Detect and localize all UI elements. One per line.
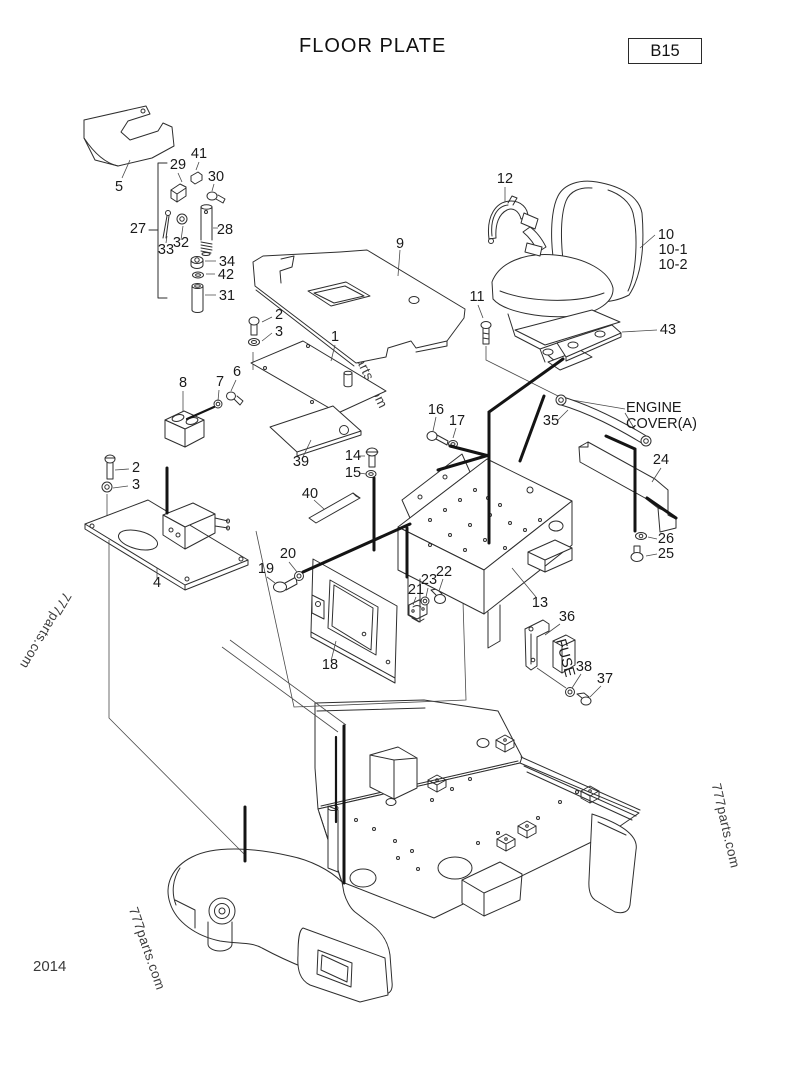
part-label-38-47: 38: [576, 659, 592, 675]
part-label-10-1-14: 10-1: [658, 242, 687, 258]
part-label-18-46: 18: [322, 657, 338, 673]
part-label-16-24: 16: [428, 402, 444, 418]
part-label-15-32: 15: [345, 465, 361, 481]
part-label-21-42: 21: [408, 582, 424, 598]
part-label-30-3: 30: [208, 169, 224, 185]
part-label-36-45: 36: [559, 609, 575, 625]
part-label-35-26: 35: [543, 413, 559, 429]
part-label-27-4: 27: [130, 221, 146, 237]
part-label-8-21: 8: [179, 375, 187, 391]
part-label-2-18: 2: [275, 307, 283, 323]
part-label-29-1: 29: [170, 157, 186, 173]
part-label-1-20: 1: [331, 329, 339, 345]
part-label-6-23: 6: [233, 364, 241, 380]
part-label-9-11: 9: [396, 236, 404, 252]
part-label-3-19: 3: [275, 324, 283, 340]
part-label-41-2: 41: [191, 146, 207, 162]
part-label-19-39: 19: [258, 561, 274, 577]
part-label-17-25: 17: [449, 413, 465, 429]
chassis-frame-drawing: [168, 700, 640, 1002]
exploded-parts-diagram: 5294130273332283442319121010-110-2114323…: [0, 0, 800, 1067]
part-label-engine-27: ENGINE: [626, 400, 682, 416]
part-label-3-35: 3: [132, 477, 140, 493]
part-label-5-0: 5: [115, 179, 123, 195]
part-label-12-12: 12: [497, 171, 513, 187]
part-label-10-13: 10: [658, 227, 674, 243]
part-label-7-22: 7: [216, 374, 224, 390]
part-label-31-10: 31: [219, 288, 235, 304]
part-label-32-6: 32: [173, 235, 189, 251]
part-label-20-38: 20: [280, 546, 296, 562]
part-label-28-7: 28: [217, 222, 233, 238]
part-label-22-40: 22: [436, 564, 452, 580]
part-label-25-37: 25: [658, 546, 674, 562]
part-label-11-16: 11: [469, 289, 484, 305]
part-label-2-34: 2: [132, 460, 140, 476]
part-label-26-36: 26: [658, 531, 674, 547]
part-label-14-31: 14: [345, 448, 361, 464]
part-label-4-44: 4: [153, 575, 161, 591]
part-5-plate-drawing: [84, 106, 174, 166]
part-label-42-9: 42: [218, 267, 234, 283]
part-label-10-2-15: 10-2: [658, 257, 687, 273]
part-label-39-30: 39: [293, 454, 309, 470]
part-label-13-43: 13: [532, 595, 548, 611]
part-label-37-48: 37: [597, 671, 613, 687]
parts-catalog-page: FLOOR PLATE B15 777parts.com 777parts.co…: [0, 0, 800, 1067]
part-label-43-17: 43: [660, 322, 676, 338]
part-label-cover-a--28: COVER(A): [626, 416, 697, 432]
part-label-40-33: 40: [302, 486, 318, 502]
part-label-33-5: 33: [158, 242, 174, 258]
seat-assembly-drawing: [481, 181, 643, 370]
part-label-24-29: 24: [653, 452, 669, 468]
